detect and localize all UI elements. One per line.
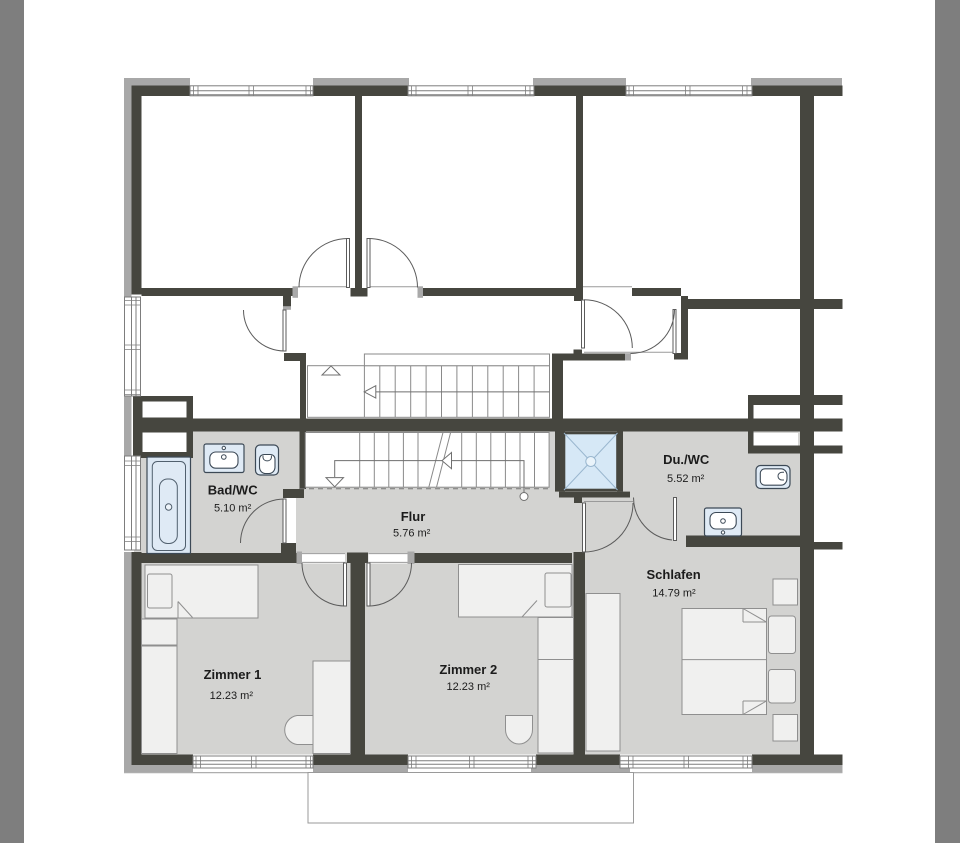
svg-text:Flur: Flur bbox=[401, 509, 426, 524]
svg-text:Bad/WC: Bad/WC bbox=[208, 483, 258, 498]
svg-text:5.76 m²: 5.76 m² bbox=[393, 528, 431, 540]
svg-text:12.23 m²: 12.23 m² bbox=[210, 690, 254, 702]
svg-text:5.10 m²: 5.10 m² bbox=[214, 503, 252, 515]
svg-text:Zimmer 1: Zimmer 1 bbox=[204, 667, 262, 682]
svg-text:5.52 m²: 5.52 m² bbox=[667, 473, 705, 485]
svg-text:12.23 m²: 12.23 m² bbox=[446, 681, 490, 693]
svg-text:Schlafen: Schlafen bbox=[647, 567, 701, 582]
svg-text:14.79 m²: 14.79 m² bbox=[652, 588, 696, 600]
svg-text:Zimmer 2: Zimmer 2 bbox=[439, 662, 497, 677]
svg-text:Du./WC: Du./WC bbox=[663, 452, 710, 467]
